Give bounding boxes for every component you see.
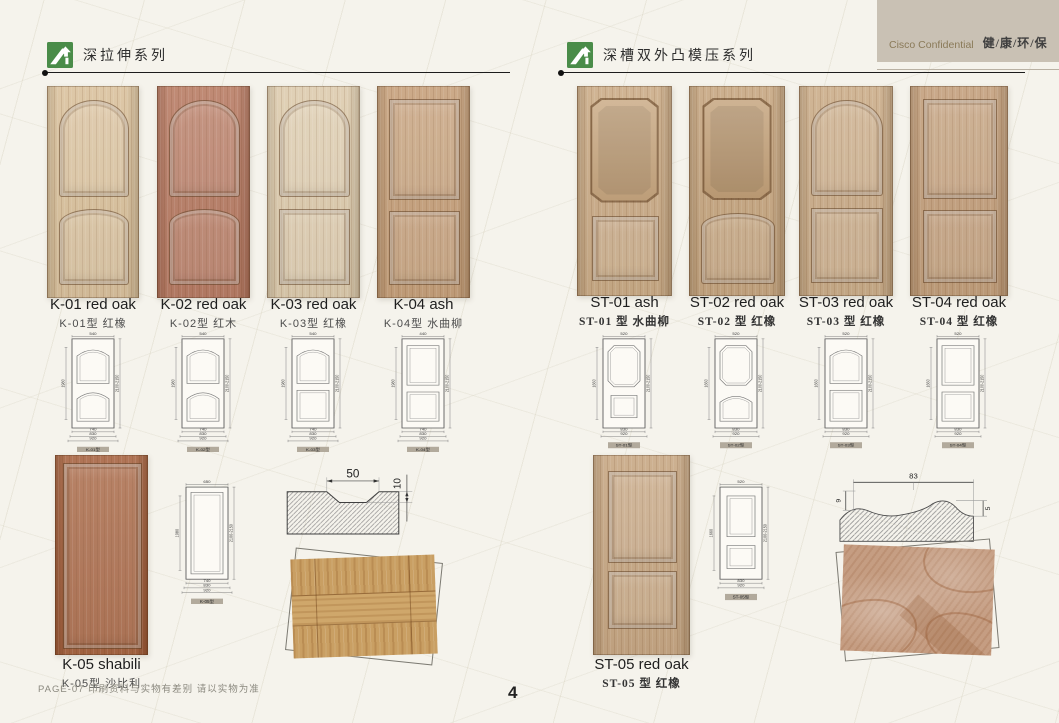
door-panel [169,100,240,197]
dim-label: 920 [419,436,427,441]
dim-label: 520 [732,332,740,336]
dim-label: 920 [954,432,962,437]
door-name-cn: ST-04 型 红橡 [879,313,1039,329]
tech-drawing-st-02: 52016602100-2150830920ST-02型 [686,332,786,452]
series-logo-icon [567,42,593,68]
tech-drawing-k-02: 54019802100-2150740830920K-02型 [153,332,253,452]
door-panel [592,216,659,281]
door-panel [389,211,460,285]
door-panel [590,98,658,203]
footer-note: PAGE-07 印刷资料与实物有差别 请以实物为准 [38,681,260,695]
dim-label: 520 [842,332,850,336]
dim-label: 2100-2150 [867,374,872,392]
door-panel [279,100,350,197]
dim-label: 83 [909,471,918,480]
dim-label: 1660 [813,379,818,388]
dim-label: 1980 [280,379,285,388]
door-photo-st-04 [910,86,1008,296]
dim-label: 2100-2150 [334,374,339,392]
dim-label: 920 [309,436,317,441]
drawing-caption: ST-01型 [616,442,634,448]
door-panel [279,209,350,285]
door-panel-inset [598,106,650,195]
dim-label: 2100-2150 [762,523,767,542]
drawing-caption: K-05型 [200,598,215,604]
door-panel [923,210,998,283]
groove-profile-drawing-st: 83 9 5 [830,462,995,551]
dim-label: 50 [346,467,360,480]
door-photo-st-05 [593,455,690,655]
dim-label: 520 [954,332,962,336]
dim-label: 540 [199,332,207,336]
wood-sample-st-series [840,545,995,655]
series-logo-icon [47,42,73,68]
tech-drawing-st-04: 52016602100-2150830920ST-04型 [908,332,1008,452]
sample-rail [292,590,437,627]
door-panel [923,99,998,200]
door-label-st-04: ST-04 red oakST-04 型 红橡 [879,295,1039,329]
left-section-rule [44,72,510,73]
dim-label: 540 [89,332,97,336]
door-photo-k-03 [267,86,360,298]
slogan-text: 健/康/环/保 [983,34,1048,51]
door-name-en: ST-05 red oak [562,657,722,673]
wood-grain-photo [840,544,995,655]
door-panel [608,471,678,563]
dim-label: 1980 [170,379,175,388]
dim-label: 920 [89,436,97,441]
dim-label: 650 [203,480,211,484]
door-panel-inset [710,106,763,193]
drawing-caption: K-04型 [416,447,431,452]
groove-profile-drawing-k: 50 10 [280,450,415,547]
right-section-title: 深槽双外凸模压系列 [603,45,756,65]
drawing-caption: ST-04型 [950,442,968,448]
door-photo-k-05 [55,455,148,655]
door-label-st-05: ST-05 red oakST-05 型 红橡 [562,657,722,691]
dim-label: 920 [199,436,207,441]
door-name-cn: K-04型 水曲柳 [344,315,504,331]
door-panel [59,100,129,197]
dim-label: 2100-2150 [228,523,233,542]
door-photo-k-02 [157,86,250,298]
dim-label: 520 [620,332,628,336]
dim-label: 5 [985,506,992,510]
confidential-label: Cisco Confidential [889,39,974,51]
dim-label: 2100-2150 [645,374,650,392]
left-section-title: 深拉伸系列 [83,45,168,65]
drawing-caption: ST-02型 [728,442,746,448]
dim-label: 440 [419,332,427,336]
dim-label: 1660 [925,379,930,388]
dim-label: 2100-2150 [114,374,119,392]
door-panel [701,213,774,284]
right-section-rule [560,72,1025,73]
tech-drawing-k-05: 65019802100-2150740830920K-05型 [157,480,257,604]
dim-label: 2100-2150 [979,374,984,392]
dim-label: 1980 [174,528,179,537]
dim-label: 9 [835,499,842,503]
drawing-caption: ST-05型 [733,594,751,600]
door-photo-k-01 [47,86,139,298]
dim-label: 1660 [591,379,596,388]
door-photo-k-04 [377,86,470,298]
door-panel-face [704,100,769,199]
dim-label: 10 [393,478,404,489]
tech-drawing-st-05: 52016602100-2150830920ST-05型 [691,480,791,604]
door-photo-st-02 [689,86,785,296]
banner-underline [877,69,1059,70]
door-panel [702,98,771,201]
dim-label: 2100-2150 [444,374,449,392]
door-name-en: K-04 ash [344,297,504,313]
tech-drawing-st-03: 52016602100-2150830920ST-03型 [796,332,896,452]
tech-drawing-k-03: 54019802100-2150740830920K-03型 [263,332,363,452]
dim-label: 520 [737,480,745,484]
door-panel [811,208,883,284]
dim-label: 2100-2150 [757,374,762,392]
door-panel [811,100,883,197]
dim-label: 1660 [703,379,708,388]
door-panel-face [592,100,656,201]
right-series-header: 深槽双外凸模压系列 [567,42,756,68]
drawing-caption: ST-03型 [838,442,856,448]
door-panel [63,463,141,649]
confidential-banner: Cisco Confidential 健/康/环/保 [877,0,1059,62]
page-number: 4 [508,683,517,703]
dim-label: 2100-2150 [224,374,229,392]
wood-sample-k-series [290,555,438,658]
door-panel [389,99,460,201]
dim-label: 920 [620,432,628,437]
drawing-caption: K-01型 [86,447,101,452]
dim-label: 920 [732,432,740,437]
door-label-k-04: K-04 ashK-04型 水曲柳 [344,297,504,331]
dim-label: 920 [203,588,211,593]
dim-label: 540 [309,332,317,336]
catalog-page: 深拉伸系列 深槽双外凸模压系列 Cisco Confidential 健/康/环… [0,0,1059,723]
wood-grain-photo [290,555,437,659]
door-name-en: K-05 shabili [22,657,182,673]
tech-drawing-st-01: 52016602100-2150830920ST-01型 [574,332,674,452]
dim-label: 920 [737,583,745,588]
tech-drawing-k-01: 54019802100-2150740830920K-01型 [43,332,143,452]
dim-label: 1660 [708,528,713,537]
left-series-header: 深拉伸系列 [47,42,168,68]
tech-drawing-k-04: 44019802100-2150740830920K-04型 [373,332,473,452]
door-photo-st-01 [577,86,672,296]
door-panel [169,209,240,285]
door-name-cn: ST-05 型 红橡 [562,675,722,691]
door-name-en: ST-04 red oak [879,295,1039,311]
dim-label: 1980 [390,379,395,388]
dim-label: 920 [842,432,850,437]
door-panel [608,571,678,629]
drawing-caption: K-02型 [196,447,211,452]
molding-ridge [917,544,995,602]
door-photo-st-03 [799,86,893,296]
door-panel [59,209,129,285]
dim-label: 1980 [60,379,65,388]
